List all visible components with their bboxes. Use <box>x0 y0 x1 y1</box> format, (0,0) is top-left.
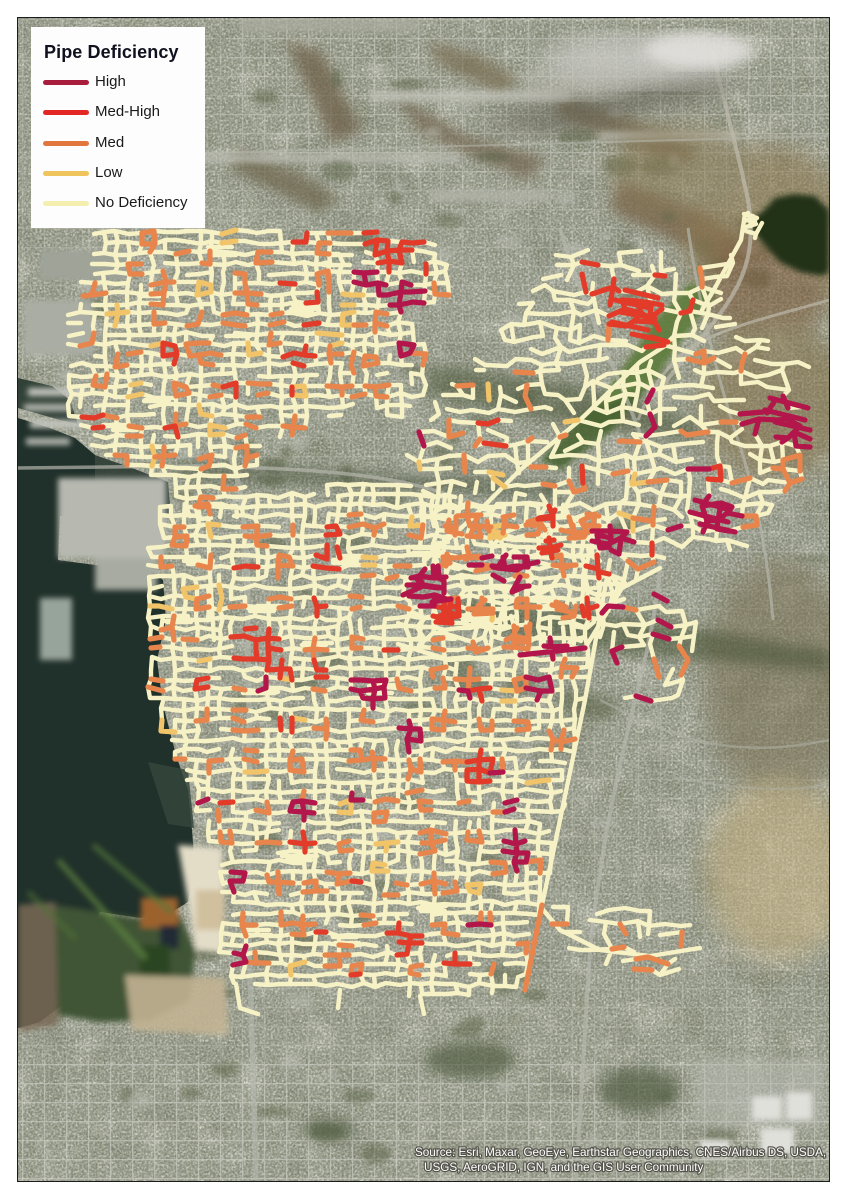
svg-text:USGS, AeroGRID, IGN, and the G: USGS, AeroGRID, IGN, and the GIS User Co… <box>424 1161 703 1174</box>
svg-text:Source: Esri, Maxar, GeoEye, E: Source: Esri, Maxar, GeoEye, Earthstar G… <box>415 1146 826 1159</box>
